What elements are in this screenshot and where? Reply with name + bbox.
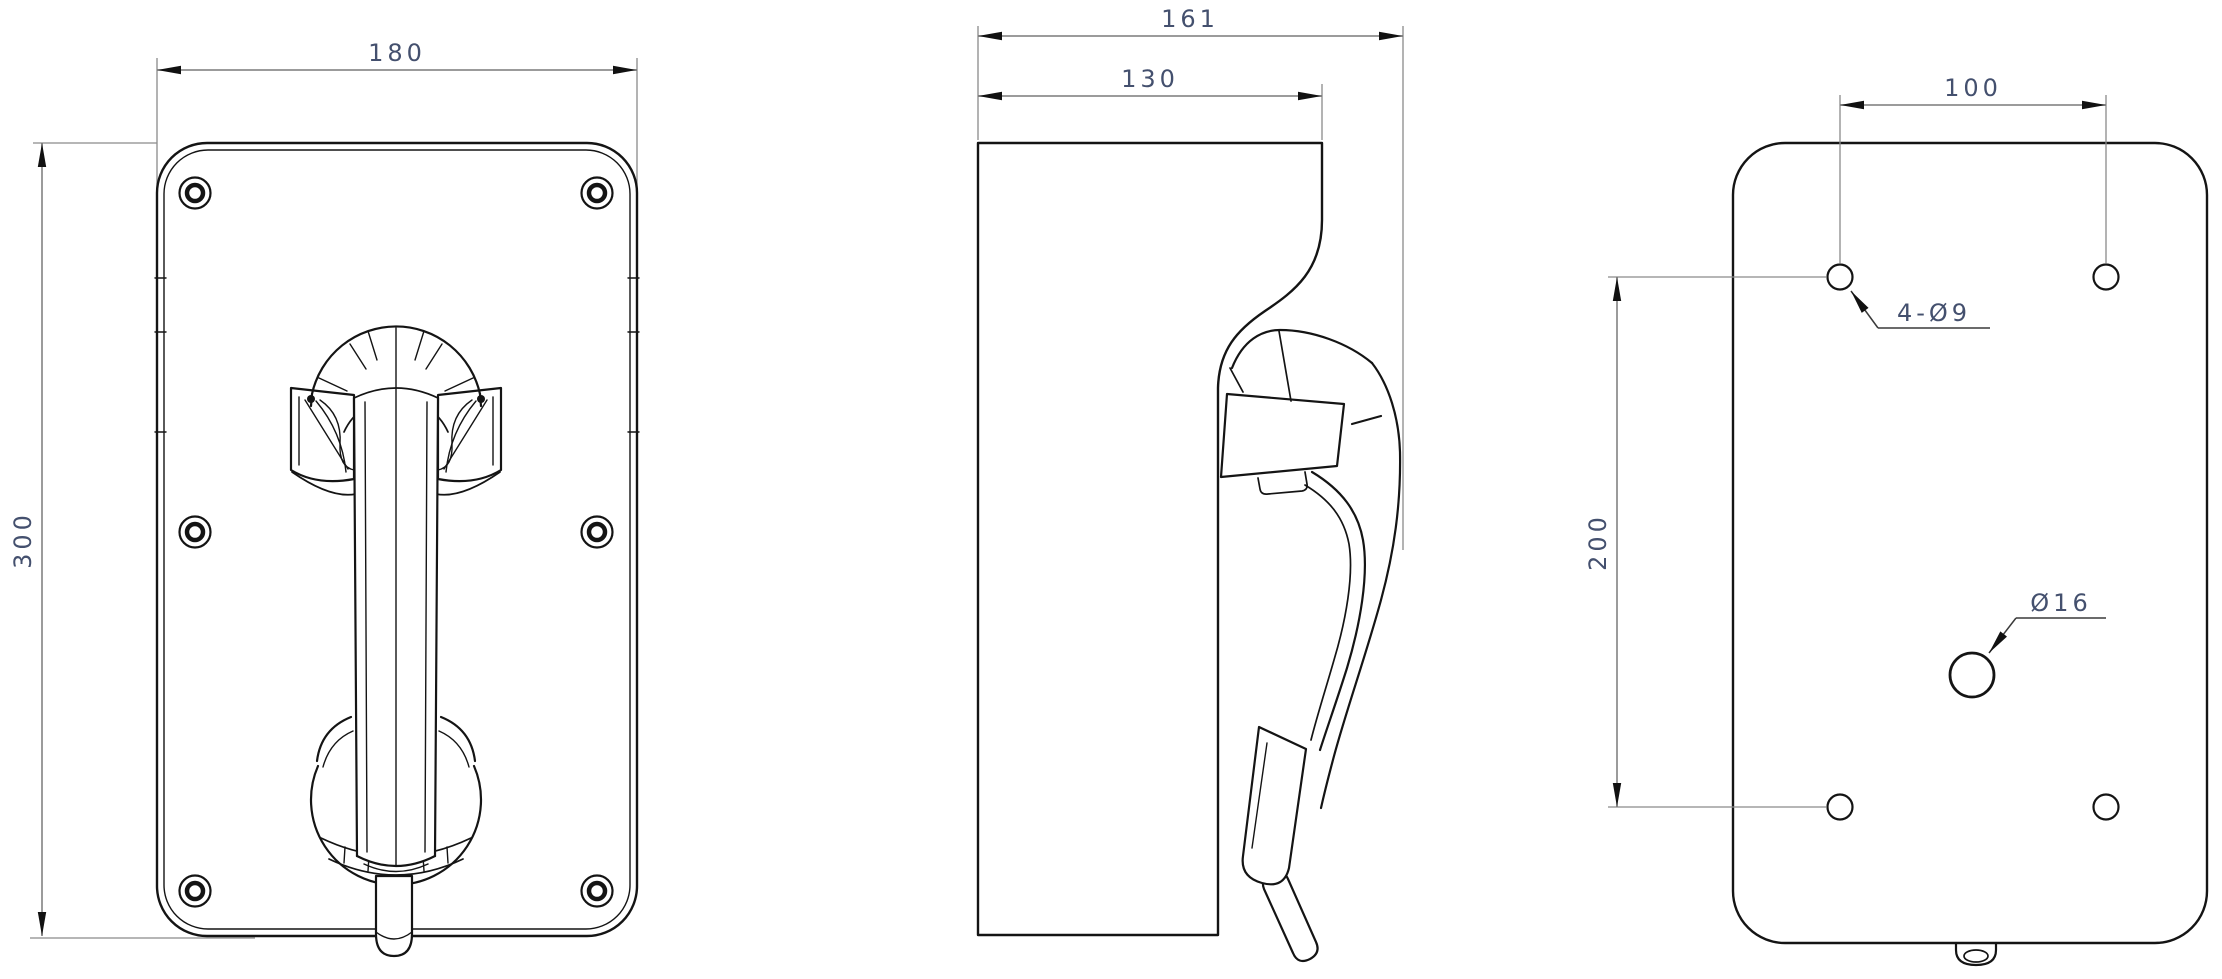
detail-line bbox=[1279, 331, 1291, 401]
hook-tip bbox=[1352, 416, 1381, 424]
handle-band-inner bbox=[1305, 485, 1351, 740]
mounting-holes-label: 4-Ø9 bbox=[1897, 299, 1971, 327]
back-hole-spacing-v-label: 200 bbox=[1584, 513, 1612, 571]
earpiece-profile bbox=[1232, 330, 1372, 368]
hook-pivot bbox=[477, 395, 485, 403]
hook-pivot bbox=[307, 395, 315, 403]
back-hole-spacing-h-label: 100 bbox=[1944, 74, 2002, 102]
front-width-label: 180 bbox=[368, 39, 426, 67]
drawing-sheet: 180 300 bbox=[0, 0, 2222, 979]
front-view: 180 300 bbox=[9, 39, 639, 956]
cord-exit-stub bbox=[376, 876, 412, 956]
handset-handle bbox=[354, 328, 438, 872]
side-body-depth-label: 130 bbox=[1121, 65, 1179, 93]
cable-hole-label: Ø16 bbox=[2030, 589, 2091, 617]
handle-outer-profile bbox=[1321, 363, 1400, 808]
front-height-label: 300 bbox=[9, 511, 37, 569]
mouthpiece-cup bbox=[1243, 727, 1306, 884]
hook-side-tab bbox=[1258, 472, 1307, 494]
detail-line bbox=[1230, 368, 1243, 392]
side-overall-depth-label: 161 bbox=[1161, 5, 1219, 33]
back-plate-outline bbox=[1733, 143, 2207, 943]
side-body-depth-dimension: 130 bbox=[978, 65, 1322, 140]
earpiece-cup bbox=[1221, 394, 1344, 477]
side-view: 161 130 bbox=[978, 5, 1403, 961]
engineering-drawing: 180 300 bbox=[0, 0, 2222, 979]
back-cable-gland bbox=[1956, 943, 1996, 965]
side-handset bbox=[1221, 330, 1400, 961]
back-view: 100 200 4-Ø9 Ø16 bbox=[1584, 74, 2207, 965]
